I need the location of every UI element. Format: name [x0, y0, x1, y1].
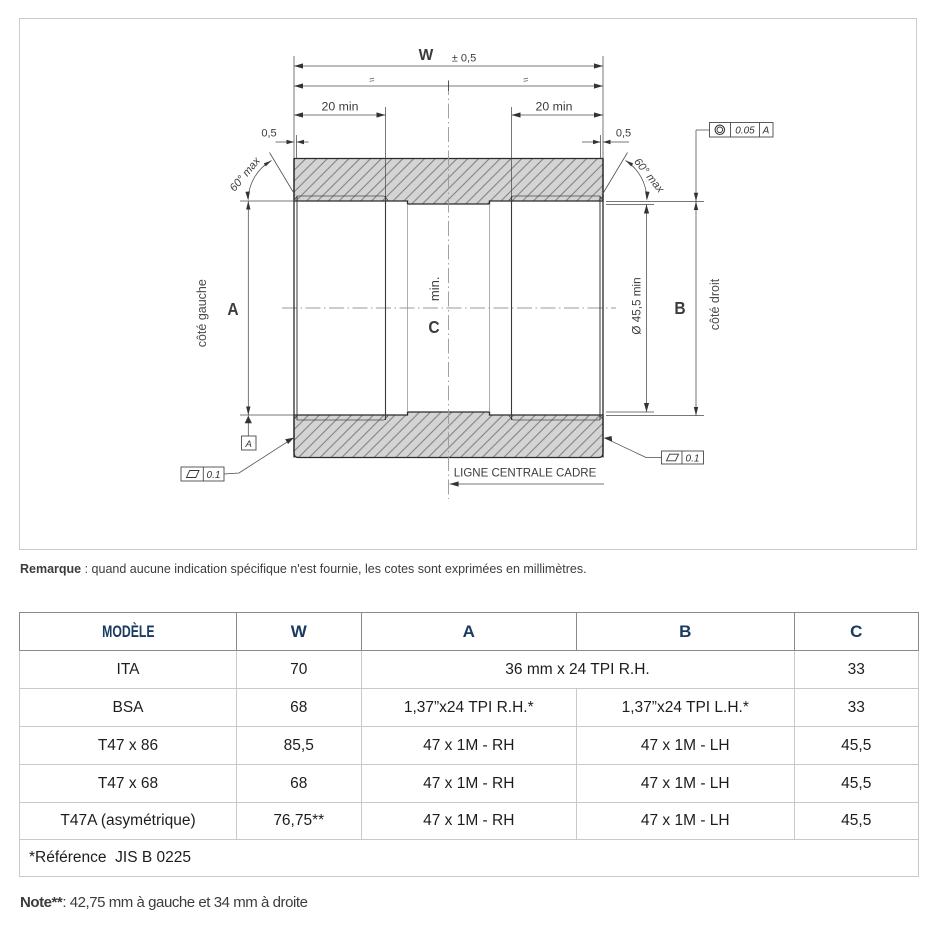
svg-text:20 min: 20 min: [536, 100, 573, 114]
svg-text:A: A: [762, 126, 770, 137]
svg-text:côté droit: côté droit: [708, 278, 722, 330]
svg-text:0.05: 0.05: [735, 126, 755, 137]
svg-text:20 min: 20 min: [322, 100, 359, 114]
svg-text:60° max: 60° max: [631, 156, 666, 195]
svg-text:W: W: [419, 47, 434, 64]
svg-text:C: C: [428, 317, 439, 337]
svg-text:60° max: 60° max: [228, 155, 264, 194]
svg-text:0,5: 0,5: [616, 128, 631, 140]
svg-text:B: B: [674, 298, 685, 318]
svg-text:min.: min.: [427, 277, 442, 302]
svg-text:0,5: 0,5: [261, 128, 276, 140]
svg-text:Ø 45,5 min: Ø 45,5 min: [631, 277, 644, 334]
svg-text:côté gauche: côté gauche: [195, 279, 209, 347]
svg-text:0.1: 0.1: [686, 454, 700, 465]
svg-text:A: A: [245, 439, 252, 450]
svg-text:± 0,5: ± 0,5: [452, 53, 476, 65]
svg-text:0.1: 0.1: [207, 470, 221, 481]
svg-text:A: A: [227, 299, 238, 319]
svg-text:LIGNE CENTRALE CADRE: LIGNE CENTRALE CADRE: [454, 468, 597, 480]
